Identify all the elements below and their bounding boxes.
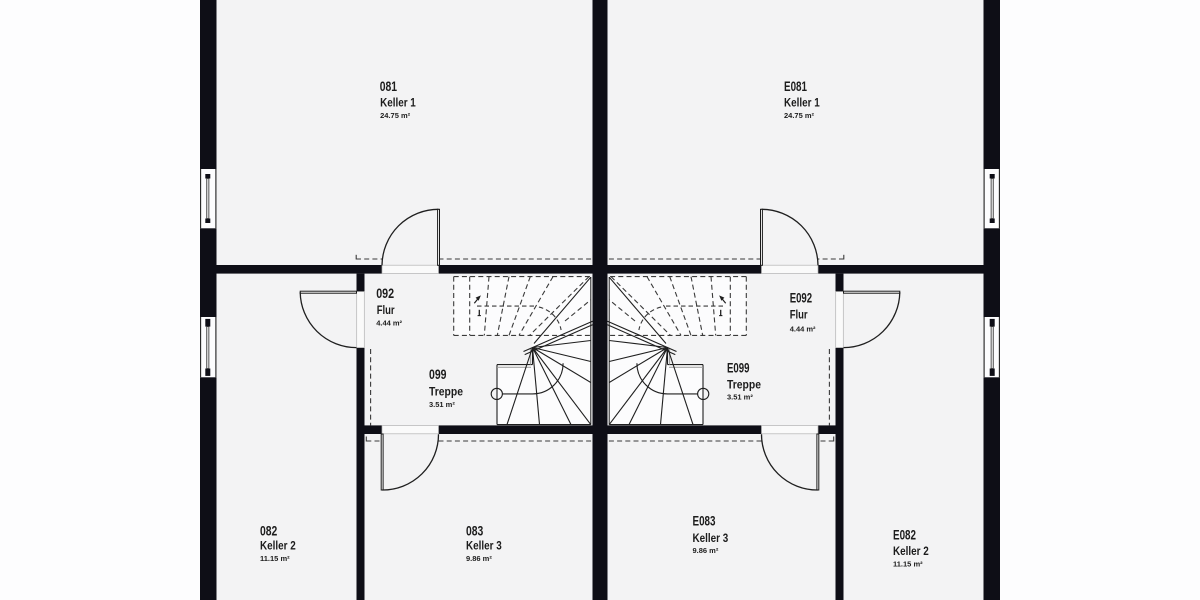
svg-text:9.86 m²: 9.86 m² [693, 546, 719, 555]
svg-text:E082: E082 [893, 528, 916, 543]
svg-text:Treppe: Treppe [727, 378, 761, 392]
svg-text:099: 099 [429, 367, 447, 382]
svg-text:24.75 m²: 24.75 m² [380, 111, 411, 120]
svg-text:3.51 m²: 3.51 m² [727, 393, 753, 402]
svg-text:E083: E083 [693, 514, 716, 529]
svg-text:Keller 2: Keller 2 [260, 538, 296, 552]
svg-text:092: 092 [376, 286, 394, 301]
svg-text:4.44 m²: 4.44 m² [376, 318, 402, 327]
svg-text:E081: E081 [784, 79, 807, 94]
svg-text:081: 081 [380, 79, 398, 94]
svg-text:E092: E092 [790, 291, 812, 306]
svg-text:11.15 m²: 11.15 m² [260, 554, 290, 563]
svg-text:Keller 1: Keller 1 [380, 96, 416, 110]
svg-text:11.15 m²: 11.15 m² [893, 560, 923, 569]
svg-text:Keller 3: Keller 3 [693, 531, 729, 545]
svg-text:082: 082 [260, 524, 277, 539]
svg-text:24.75 m²: 24.75 m² [784, 111, 815, 120]
svg-text:9.86 m²: 9.86 m² [466, 554, 492, 563]
svg-text:3.51 m²: 3.51 m² [429, 400, 455, 409]
svg-text:083: 083 [466, 524, 483, 539]
svg-text:Treppe: Treppe [429, 385, 463, 399]
svg-text:Keller 3: Keller 3 [466, 539, 502, 553]
svg-text:Flur: Flur [377, 303, 395, 317]
svg-text:E099: E099 [727, 361, 750, 376]
svg-text:Keller 1: Keller 1 [784, 96, 820, 110]
svg-text:Keller 2: Keller 2 [893, 544, 929, 558]
svg-text:Flur: Flur [790, 308, 808, 322]
svg-text:4.44 m²: 4.44 m² [790, 325, 816, 334]
